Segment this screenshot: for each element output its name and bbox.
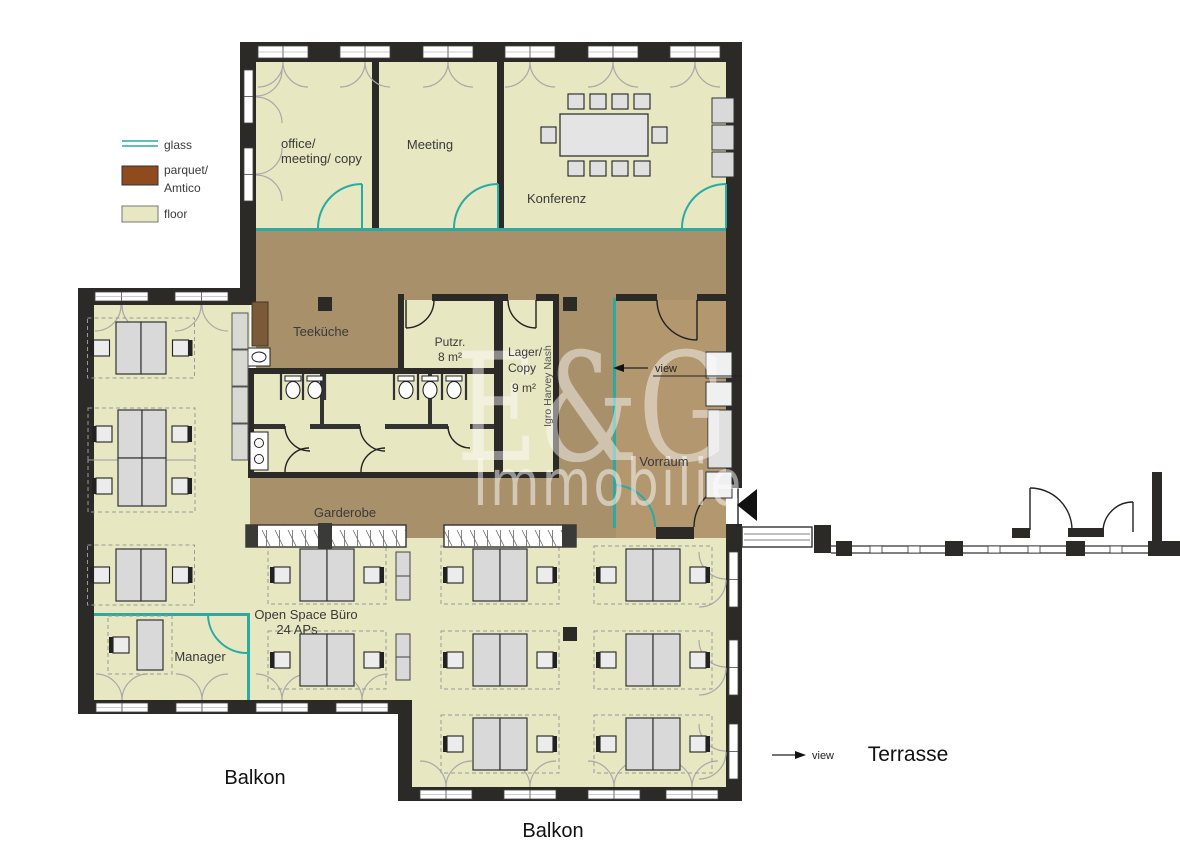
desk <box>300 634 327 686</box>
label-vorraum: Vorraum <box>639 454 688 469</box>
desk <box>626 634 653 686</box>
chair-back <box>596 567 600 583</box>
chair <box>172 478 188 494</box>
chair-back <box>270 652 274 668</box>
desk <box>142 410 166 458</box>
chair <box>274 652 290 668</box>
toilet-bowl <box>399 382 413 399</box>
desk <box>118 458 142 506</box>
chair <box>94 340 110 356</box>
label-manager: Manager <box>174 649 226 664</box>
chair <box>447 736 463 752</box>
chair-back <box>92 426 96 442</box>
floor-plan-svg: E&G Immobilien view view Igro Harvey Nas… <box>0 0 1180 850</box>
desk <box>626 549 653 601</box>
railing-tick <box>908 546 920 553</box>
legend-parquet-label-1: parquet/ <box>164 163 209 177</box>
chair-back <box>706 567 710 583</box>
terrace-wall-stub <box>1152 472 1162 542</box>
chair-back <box>596 736 600 752</box>
chair-back <box>706 736 710 752</box>
label-balkon-left: Balkon <box>224 767 285 789</box>
chair <box>537 567 553 583</box>
chair-back <box>90 567 94 583</box>
chair <box>364 567 380 583</box>
legend: glass parquet/ Amtico floor <box>122 138 209 222</box>
desk <box>300 549 327 601</box>
wc-fixtures <box>250 432 268 470</box>
legend-parquet-swatch <box>122 166 158 185</box>
chair <box>447 652 463 668</box>
chair-back <box>188 478 192 494</box>
label-lager-1: Lager/ <box>508 345 543 359</box>
chair-back <box>109 637 113 653</box>
label-garderobe: Garderobe <box>314 505 376 520</box>
floor-plan-canvas: E&G Immobilien view view Igro Harvey Nas… <box>0 0 1180 850</box>
chair-back <box>596 652 600 668</box>
legend-glass-label: glass <box>164 138 192 152</box>
chair <box>173 567 189 583</box>
chair <box>600 736 616 752</box>
wall-top <box>240 42 742 62</box>
label-lager-3: 9 m² <box>512 381 536 395</box>
toilet-bowl <box>423 382 437 399</box>
chair-back <box>706 652 710 668</box>
pillar <box>563 297 577 311</box>
view-right-arrowhead <box>795 751 806 759</box>
chair <box>537 736 553 752</box>
kitchen-cabinet <box>252 302 268 346</box>
conference-table <box>560 114 648 156</box>
legend-floor-swatch <box>122 206 158 222</box>
legend-parquet-label-2: Amtico <box>164 181 201 195</box>
chair-back <box>553 652 557 668</box>
desk <box>141 549 166 601</box>
railing-tick <box>1110 546 1122 553</box>
chair-back <box>443 567 447 583</box>
label-putzraum-1: Putzr. <box>435 335 466 349</box>
toilet-tank <box>422 376 438 381</box>
chair <box>690 736 706 752</box>
kitchen-sink <box>248 348 270 366</box>
chair <box>447 567 463 583</box>
corridor-floor <box>256 231 726 300</box>
desk <box>500 718 527 770</box>
chair <box>113 637 129 653</box>
conference-cabinets <box>712 98 734 177</box>
label-open-space-2: 24 APs <box>276 622 318 637</box>
chair-back <box>553 567 557 583</box>
watermark-subtitle: Immobilien <box>473 447 778 521</box>
label-putzraum-2: 8 m² <box>438 350 462 364</box>
chair-back <box>188 426 192 442</box>
chair <box>94 567 110 583</box>
chair <box>274 567 290 583</box>
chair <box>690 652 706 668</box>
toilet-tank <box>307 376 323 381</box>
desk <box>500 549 527 601</box>
view-left-label: view <box>655 363 677 375</box>
wing-cabinets <box>232 313 248 460</box>
chair-back <box>443 652 447 668</box>
desk <box>137 620 163 670</box>
desk <box>653 549 680 601</box>
desk <box>141 322 166 374</box>
chair <box>600 567 616 583</box>
desk <box>500 634 527 686</box>
chair-back <box>553 736 557 752</box>
chair <box>173 340 189 356</box>
railing-tick <box>988 546 1000 553</box>
terrace-pillar <box>814 525 831 553</box>
chair <box>364 652 380 668</box>
label-office-2: meeting/ copy <box>281 151 362 166</box>
pillar <box>318 297 332 311</box>
chair <box>537 652 553 668</box>
toilet-tank <box>398 376 414 381</box>
terrace-structure <box>742 472 1180 556</box>
chair <box>690 567 706 583</box>
legend-floor-label: floor <box>164 207 187 221</box>
wall-ext-left <box>398 700 412 787</box>
pillar <box>563 627 577 641</box>
label-lager-2: Copy <box>508 361 536 375</box>
chair <box>96 426 112 442</box>
desk <box>473 634 500 686</box>
label-balkon-bottom: Balkon <box>522 820 583 842</box>
wall-office-meeting <box>372 62 379 228</box>
desk <box>653 634 680 686</box>
label-terrasse: Terrasse <box>868 743 949 766</box>
toilet-bowl <box>308 382 322 399</box>
chair-back <box>92 478 96 494</box>
desk <box>142 458 166 506</box>
desk <box>473 549 500 601</box>
desk <box>118 410 142 458</box>
chair <box>96 478 112 494</box>
chair-back <box>380 567 384 583</box>
chair <box>172 426 188 442</box>
desk <box>116 322 141 374</box>
desk <box>626 718 653 770</box>
desk <box>653 718 680 770</box>
label-teekueche: Teeküche <box>293 324 349 339</box>
desk <box>473 718 500 770</box>
label-meeting: Meeting <box>407 137 453 152</box>
terrace-walkway <box>742 527 812 547</box>
chair-back <box>189 567 193 583</box>
toilet-tank <box>285 376 301 381</box>
chair-back <box>380 652 384 668</box>
chair-back <box>270 567 274 583</box>
toilet-bowl <box>286 382 300 399</box>
view-right-label: view <box>812 750 834 762</box>
desk <box>327 634 354 686</box>
vertical-note: Igro Harvey Nash <box>542 345 554 427</box>
label-office-1: office/ <box>281 136 316 151</box>
desk <box>116 549 141 601</box>
railing-tick <box>870 546 882 553</box>
label-konferenz: Konferenz <box>527 191 586 206</box>
label-open-space-1: Open Space Büro <box>254 607 357 622</box>
desk <box>327 549 354 601</box>
railing-tick <box>1028 546 1040 553</box>
chair-back <box>90 340 94 356</box>
chair-back <box>189 340 193 356</box>
chair-back <box>443 736 447 752</box>
chair <box>600 652 616 668</box>
wc-sink-unit <box>250 432 268 470</box>
